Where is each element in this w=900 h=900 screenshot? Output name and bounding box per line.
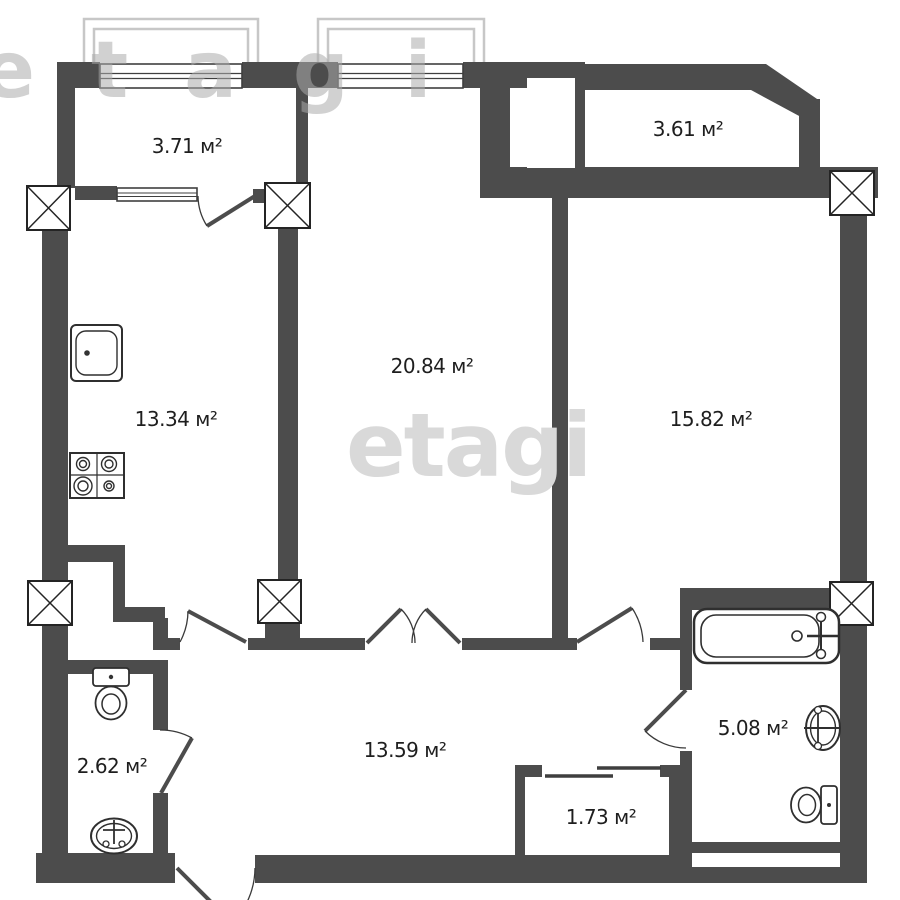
room-area-label-loggia-left: 3.71 м² xyxy=(152,134,223,158)
door-wc xyxy=(160,730,192,793)
doors xyxy=(160,196,686,900)
balcony-rail xyxy=(84,19,484,64)
vent-shaft xyxy=(527,78,575,168)
door-living-room xyxy=(367,609,460,643)
door-bedroom xyxy=(577,608,643,642)
floor-plan: etagi etagi xyxy=(0,0,900,900)
room-area-label-kitchen: 13.34 м² xyxy=(135,407,218,431)
door-kitchen xyxy=(180,611,246,642)
room-area-label-storage: 1.73 м² xyxy=(566,805,637,829)
sliding-door-storage xyxy=(545,768,661,776)
toilet-bathroom xyxy=(791,786,837,824)
wash-basin-bathroom xyxy=(804,706,840,750)
room-area-label-loggia-right: 3.61 м² xyxy=(653,117,724,141)
wash-basin-wc xyxy=(91,819,137,854)
stove xyxy=(70,453,124,498)
door-bathroom xyxy=(645,690,686,748)
door-entry xyxy=(177,868,255,900)
toilet-wc xyxy=(93,668,129,720)
column-marker xyxy=(27,171,874,625)
kitchen-sink xyxy=(71,325,122,381)
room-area-label-bedroom: 15.82 м² xyxy=(670,407,753,431)
walls xyxy=(36,62,878,883)
door-loggia-left xyxy=(198,196,255,226)
room-area-label-hallway: 13.59 м² xyxy=(364,738,447,762)
bathtub xyxy=(694,609,839,663)
room-area-label-bathroom: 5.08 м² xyxy=(718,716,789,740)
room-area-label-living-room: 20.84 м² xyxy=(391,354,474,378)
room-area-label-wc: 2.62 м² xyxy=(77,754,148,778)
